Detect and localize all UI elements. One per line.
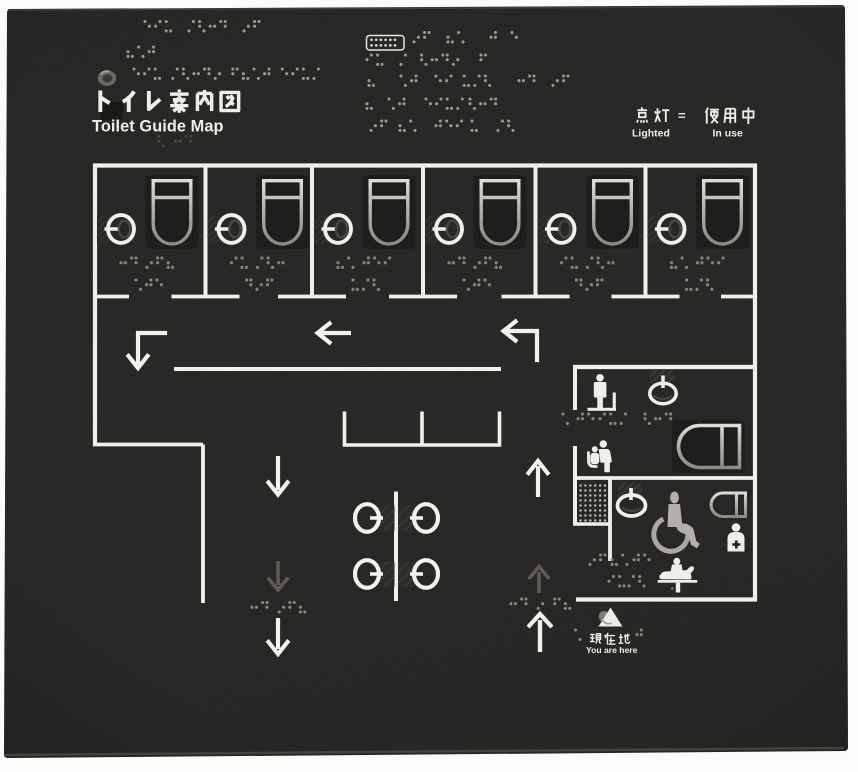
svg-text:=: = (678, 108, 686, 123)
svg-text:Toilet Guide Map: Toilet Guide Map (92, 118, 224, 136)
svg-text:In use: In use (713, 128, 744, 140)
svg-text:You are here: You are here (586, 645, 638, 655)
svg-text:Lighted: Lighted (632, 128, 670, 140)
